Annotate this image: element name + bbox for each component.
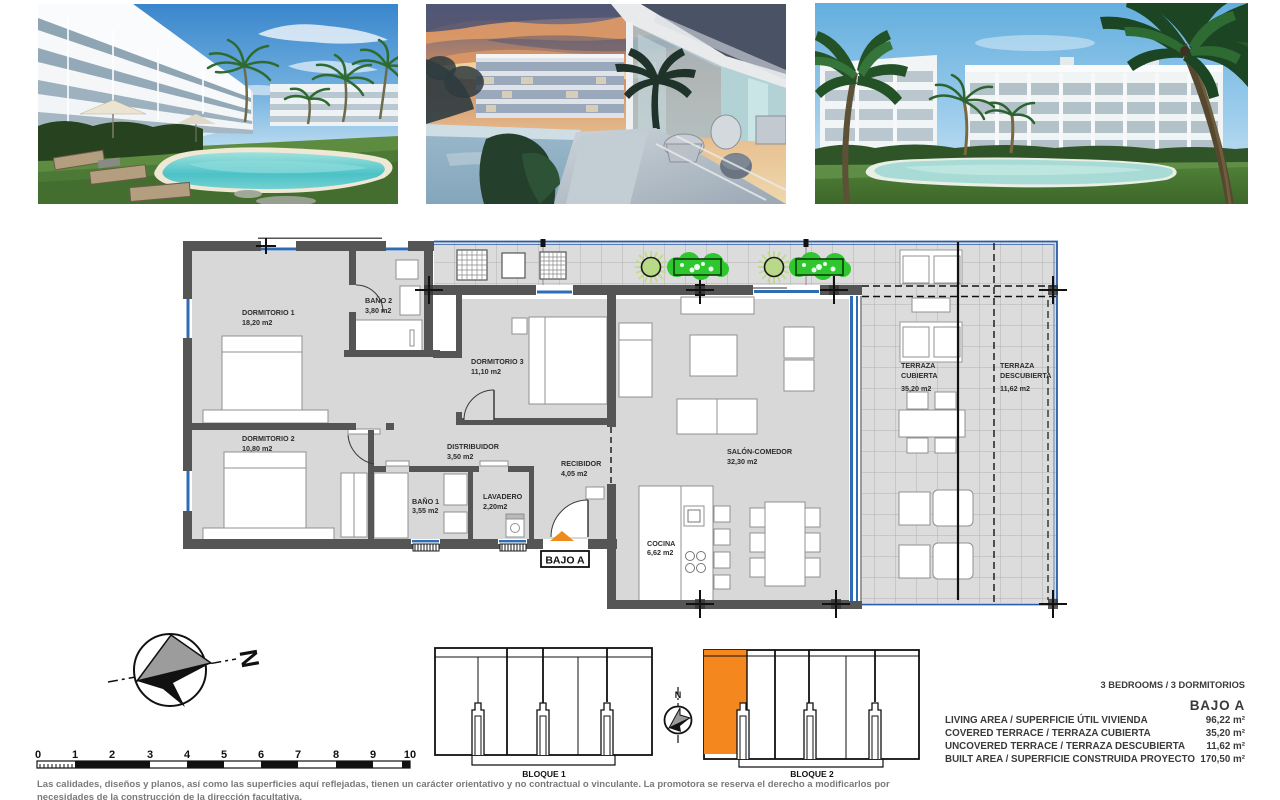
svg-text:BAÑO 2: BAÑO 2 [365, 296, 392, 305]
svg-text:0: 0 [35, 749, 41, 761]
svg-text:RECIBIDOR: RECIBIDOR [561, 459, 602, 468]
svg-text:3,80 m2: 3,80 m2 [365, 306, 391, 315]
svg-text:BAJO A: BAJO A [1190, 698, 1245, 713]
svg-text:35,20 m²: 35,20 m² [1206, 728, 1246, 739]
svg-text:1: 1 [72, 749, 78, 761]
svg-text:DORMITORIO 3: DORMITORIO 3 [471, 357, 524, 366]
svg-text:COVERED TERRACE / TERRAZA CUBI: COVERED TERRACE / TERRAZA CUBIERTA [945, 728, 1151, 739]
svg-text:LIVING AREA / SUPERFICIE ÚTIL: LIVING AREA / SUPERFICIE ÚTIL VIVIENDA [945, 714, 1148, 726]
svg-text:BUILT AREA / SUPERFICIE CONSTR: BUILT AREA / SUPERFICIE CONSTRUIDA PROYE… [945, 754, 1195, 765]
svg-text:UNCOVERED TERRACE / TERRAZA DE: UNCOVERED TERRACE / TERRAZA DESCUBIERTA [945, 741, 1185, 752]
svg-text:necesidades de la construcción: necesidades de la construcción de la dir… [37, 792, 302, 800]
svg-text:11,10 m2: 11,10 m2 [471, 367, 501, 376]
svg-text:DESCUBIERTA: DESCUBIERTA [1000, 371, 1051, 380]
svg-text:170,50 m²: 170,50 m² [1200, 754, 1245, 765]
svg-text:BAÑO 1: BAÑO 1 [412, 497, 439, 506]
svg-text:3 BEDROOMS / 3 DORMITORIOS: 3 BEDROOMS / 3 DORMITORIOS [1101, 680, 1245, 690]
svg-text:4: 4 [184, 749, 191, 761]
svg-text:Las calidades, diseños y plano: Las calidades, diseños y planos, así com… [37, 779, 890, 790]
svg-text:32,30 m2: 32,30 m2 [727, 457, 757, 466]
svg-text:18,20 m2: 18,20 m2 [242, 318, 272, 327]
svg-text:SALÓN-COMEDOR: SALÓN-COMEDOR [727, 447, 793, 456]
svg-text:CUBIERTA: CUBIERTA [901, 371, 938, 380]
svg-text:6: 6 [258, 749, 264, 761]
svg-text:35,20 m2: 35,20 m2 [901, 384, 931, 393]
svg-text:BAJO A: BAJO A [545, 555, 585, 567]
svg-text:LAVADERO: LAVADERO [483, 492, 523, 501]
svg-text:3,55 m2: 3,55 m2 [412, 506, 438, 515]
svg-text:6,62 m2: 6,62 m2 [647, 548, 673, 557]
svg-text:3: 3 [147, 749, 153, 761]
svg-text:7: 7 [295, 749, 301, 761]
svg-text:DISTRIBUIDOR: DISTRIBUIDOR [447, 442, 500, 451]
svg-text:3,50 m2: 3,50 m2 [447, 452, 473, 461]
svg-text:11,62 m2: 11,62 m2 [1000, 384, 1030, 393]
svg-text:10,80 m2: 10,80 m2 [242, 444, 272, 453]
svg-text:96,22 m²: 96,22 m² [1206, 715, 1246, 726]
svg-text:BLOQUE 2: BLOQUE 2 [790, 769, 834, 779]
svg-text:N: N [675, 690, 682, 700]
svg-text:COCINA: COCINA [647, 539, 675, 548]
svg-text:2,20m2: 2,20m2 [483, 502, 507, 511]
svg-text:4,05 m2: 4,05 m2 [561, 469, 587, 478]
svg-text:BLOQUE 1: BLOQUE 1 [522, 769, 566, 779]
svg-text:8: 8 [333, 749, 339, 761]
svg-text:N: N [234, 647, 265, 670]
svg-text:TERRAZA: TERRAZA [901, 361, 935, 370]
svg-text:TERRAZA: TERRAZA [1000, 361, 1034, 370]
svg-text:11,62 m²: 11,62 m² [1206, 741, 1245, 752]
svg-text:DORMITORIO 2: DORMITORIO 2 [242, 434, 295, 443]
svg-text:10: 10 [404, 749, 416, 761]
svg-text:DORMITORIO 1: DORMITORIO 1 [242, 308, 295, 317]
svg-text:2: 2 [109, 749, 115, 761]
svg-text:5: 5 [221, 749, 227, 761]
svg-text:9: 9 [370, 749, 376, 761]
